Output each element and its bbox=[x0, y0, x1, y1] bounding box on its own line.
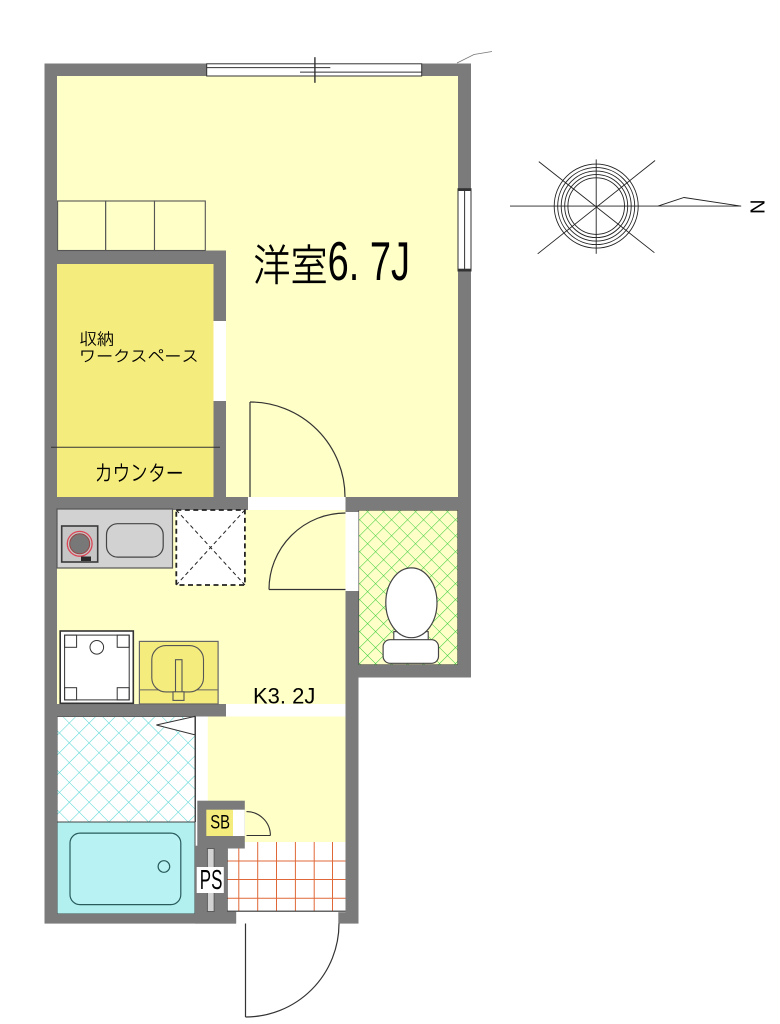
svg-text:N: N bbox=[746, 200, 768, 214]
svg-text:K3. 2J: K3. 2J bbox=[253, 684, 315, 709]
svg-text:PS: PS bbox=[200, 864, 223, 895]
svg-text:SB: SB bbox=[210, 812, 230, 833]
svg-text:6. 7J: 6. 7J bbox=[328, 231, 410, 291]
